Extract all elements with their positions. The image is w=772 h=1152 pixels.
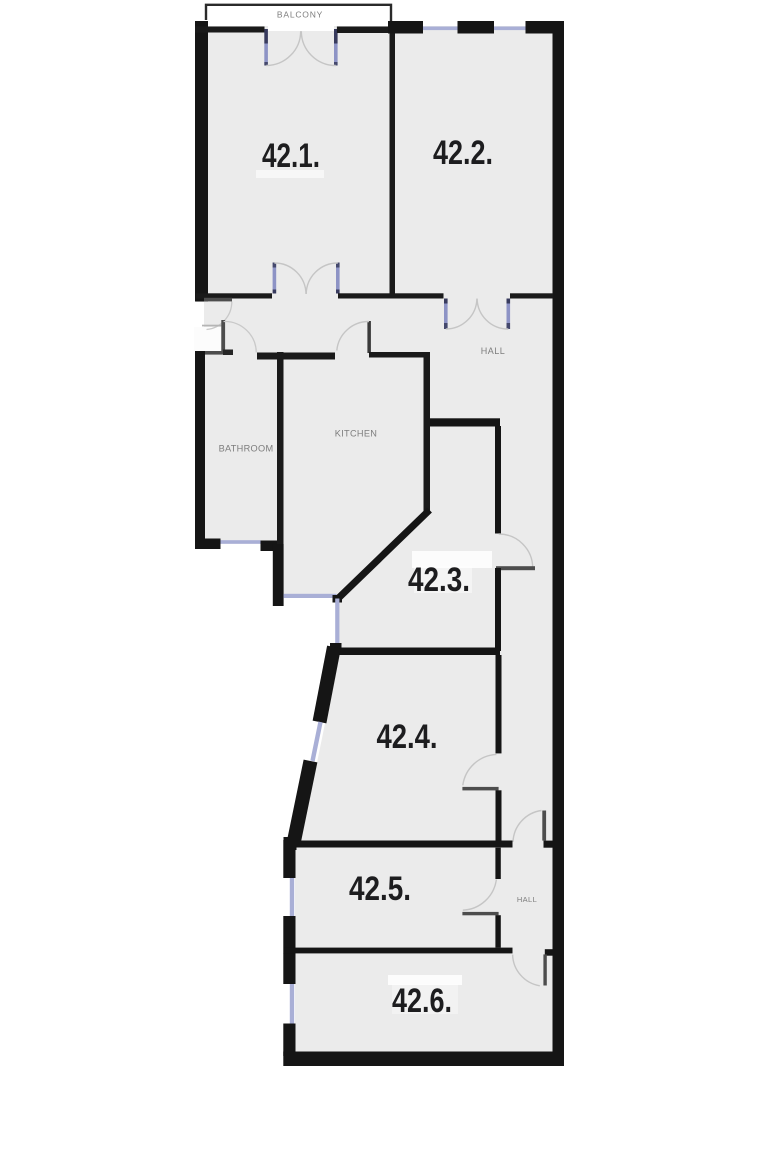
svg-text:42.3.: 42.3. bbox=[408, 561, 470, 599]
svg-text:KITCHEN: KITCHEN bbox=[335, 429, 377, 439]
svg-text:42.5.: 42.5. bbox=[349, 870, 411, 908]
svg-text:42.1.: 42.1. bbox=[262, 137, 320, 175]
svg-text:BALCONY: BALCONY bbox=[277, 10, 323, 20]
svg-text:42.2.: 42.2. bbox=[433, 134, 493, 172]
svg-text:42.4.: 42.4. bbox=[377, 718, 438, 756]
svg-text:HALL: HALL bbox=[517, 895, 537, 904]
svg-text:42.6.: 42.6. bbox=[392, 982, 452, 1020]
svg-text:BATHROOM: BATHROOM bbox=[219, 444, 274, 454]
svg-text:HALL: HALL bbox=[481, 346, 506, 356]
